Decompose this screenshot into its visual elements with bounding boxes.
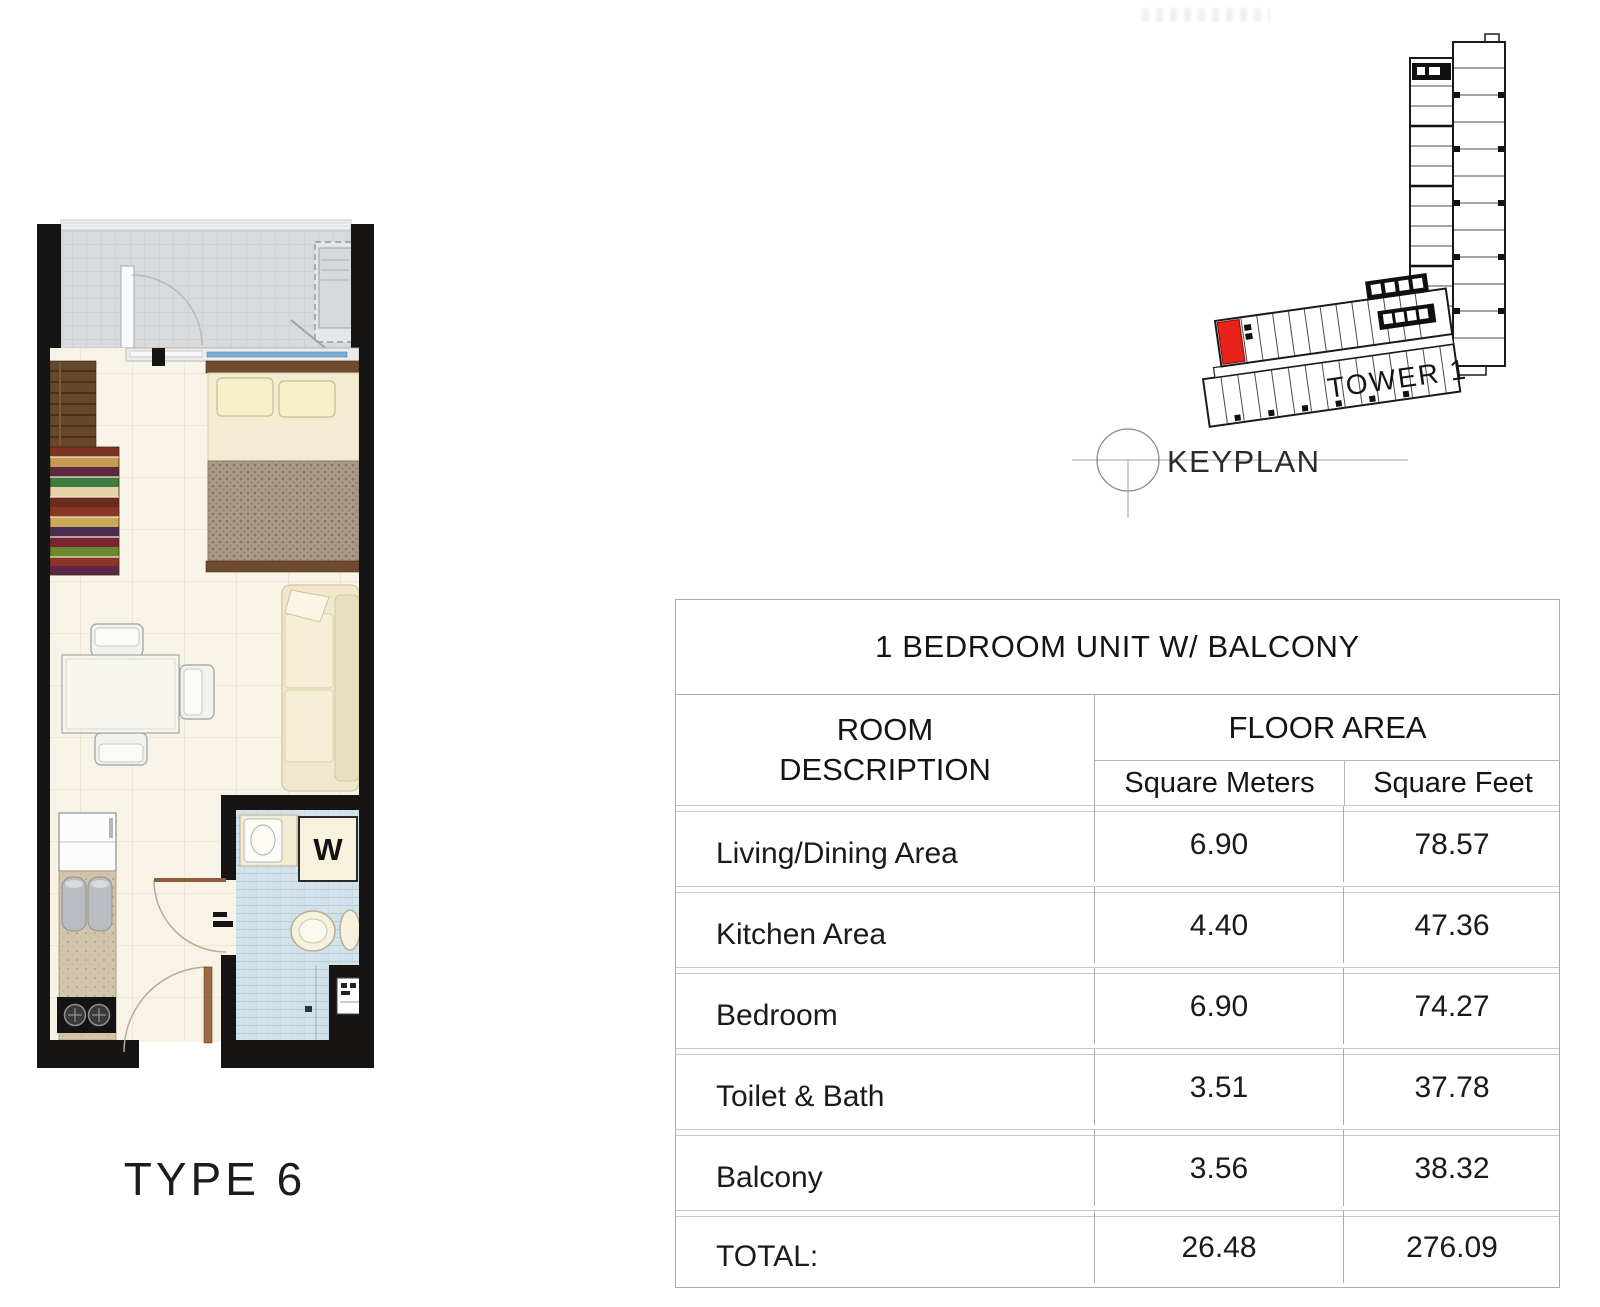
- unit-type-label: TYPE 6: [95, 1152, 335, 1206]
- total-sqft-value: 276.09: [1343, 1213, 1560, 1283]
- sqm-header: Square Meters: [1095, 761, 1344, 805]
- shelf-stack: [50, 447, 119, 575]
- pillow: [279, 381, 335, 417]
- floor-area-header: FLOOR AREA: [1095, 695, 1560, 761]
- sqm-value: 4.40: [1094, 889, 1343, 963]
- sqft-value: 37.78: [1343, 1051, 1560, 1125]
- table-row: Kitchen Area 4.40 47.36: [676, 893, 1559, 967]
- bathroom-sink: [240, 815, 297, 866]
- room-name: Toilet & Bath: [676, 1060, 1094, 1134]
- sqm-value: 6.90: [1094, 970, 1343, 1044]
- pillow: [217, 378, 273, 416]
- toilet: [291, 910, 360, 951]
- dining-table: [62, 655, 179, 733]
- sqft-value: 74.27: [1343, 970, 1560, 1044]
- area-table-title: 1 BEDROOM UNIT W/ BALCONY: [676, 600, 1559, 695]
- keyplan-title: KEYPLAN: [1167, 444, 1321, 479]
- floorplan-sheet: W: [0, 0, 1600, 1307]
- table-row: Balcony 3.56 38.32: [676, 1136, 1559, 1210]
- sqft-value: 47.36: [1343, 889, 1560, 963]
- room-name: Kitchen Area: [676, 898, 1094, 972]
- scan-artifact: [1142, 8, 1270, 22]
- sofa: [282, 585, 359, 791]
- blanket: [208, 461, 359, 561]
- sqm-value: 3.56: [1094, 1132, 1343, 1206]
- kitchen: [57, 813, 116, 1040]
- balcony: [37, 220, 374, 351]
- sqm-value: 3.51: [1094, 1051, 1343, 1125]
- sqft-header: Square Feet: [1344, 761, 1561, 805]
- elevator-core: [1412, 63, 1451, 80]
- stove: [57, 997, 116, 1033]
- table-row: Bedroom 6.90 74.27: [676, 974, 1559, 1048]
- sqm-value: 6.90: [1094, 808, 1343, 882]
- sqft-value: 78.57: [1343, 808, 1560, 882]
- room-name: Balcony: [676, 1141, 1094, 1215]
- sqft-value: 38.32: [1343, 1132, 1560, 1206]
- room-name: Bedroom: [676, 979, 1094, 1053]
- table-row: Toilet & Bath 3.51 37.78: [676, 1055, 1559, 1129]
- total-label: TOTAL:: [676, 1222, 1094, 1292]
- tower-angled-wing: TOWER 1: [1193, 269, 1470, 426]
- washer: W: [299, 817, 357, 881]
- washer-label: W: [313, 832, 343, 867]
- area-table-header: ROOM DESCRIPTION FLOOR AREA Square Meter…: [676, 695, 1559, 805]
- total-sqm-value: 26.48: [1094, 1213, 1343, 1283]
- room-name: Living/Dining Area: [676, 817, 1094, 891]
- table-row: Living/Dining Area 6.90 78.57: [676, 812, 1559, 886]
- table-total-row: TOTAL: 26.48 276.09: [676, 1217, 1559, 1287]
- keyplan-drawing: TOWER 1 KEYPLAN: [1060, 28, 1540, 528]
- area-table: 1 BEDROOM UNIT W/ BALCONY ROOM DESCRIPTI…: [675, 599, 1560, 1288]
- unit-floorplan-drawing: W: [29, 218, 379, 1068]
- room-description-header: ROOM DESCRIPTION: [676, 695, 1094, 805]
- bed: [206, 361, 359, 572]
